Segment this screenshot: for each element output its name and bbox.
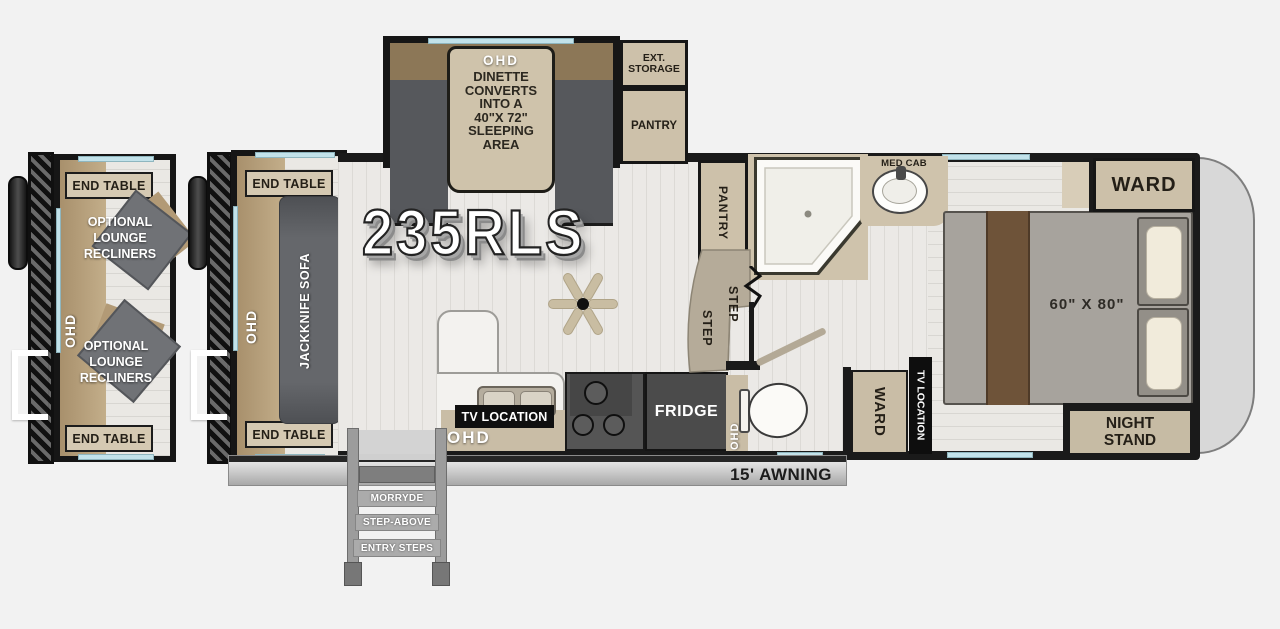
pillow-icon	[1146, 226, 1182, 299]
entry-step: MORRYDE	[357, 490, 437, 507]
ohd-label: OHD	[62, 268, 78, 348]
dinette-label: DINETTE CONVERTS INTO A 40"X 72" SLEEPIN…	[450, 70, 552, 151]
entry-step: STEP-ABOVE	[355, 514, 439, 531]
dinette-table: OHD DINETTE CONVERTS INTO A 40"X 72" SLE…	[447, 46, 555, 193]
stove-icon	[565, 372, 645, 451]
front-pantry: PANTRY	[620, 88, 688, 164]
entry-steps-foot	[432, 562, 450, 586]
corner-shower-icon	[748, 154, 868, 280]
wheel-icon	[188, 176, 208, 270]
wall	[726, 361, 760, 370]
entry-steps-foot	[344, 562, 362, 586]
bedroom-dresser	[1062, 162, 1090, 208]
end-table: END TABLE	[245, 170, 333, 197]
awning-bar: 15' AWNING	[228, 455, 847, 486]
model-number: 235RLS	[362, 195, 585, 269]
end-table: END TABLE	[245, 421, 333, 448]
window-icon	[78, 156, 154, 162]
pillow-box	[1137, 308, 1189, 397]
ohd-label: OHD	[447, 428, 491, 448]
bed-runner	[986, 211, 1030, 405]
floorplan-235rls: END TABLE END TABLE OPTIONAL LOUNGE RECL…	[0, 0, 1280, 629]
entry-door-icon	[12, 350, 48, 420]
ceiling-fan-icon	[549, 270, 617, 338]
window-icon	[233, 206, 238, 351]
fridge: FRIDGE	[645, 372, 728, 451]
optional-recliners-label: OPTIONAL LOUNGE RECLINERS	[64, 336, 168, 388]
optional-recliners-label: OPTIONAL LOUNGE RECLINERS	[68, 212, 172, 264]
jackknife-sofa-label: JACKKNIFE SOFA	[295, 216, 315, 406]
ext-storage: EXT. STORAGE	[620, 40, 688, 88]
window-icon	[255, 152, 335, 158]
window-icon	[78, 454, 154, 460]
optional-recliner-slide: END TABLE END TABLE OPTIONAL LOUNGE RECL…	[54, 154, 176, 462]
window-icon	[942, 154, 1030, 160]
awning-label: 15' AWNING	[730, 465, 832, 485]
wall	[1063, 403, 1070, 457]
entry-step	[359, 466, 435, 483]
step-label: STEP	[700, 310, 714, 347]
wall	[1063, 403, 1195, 411]
hall-ward-label: WARD	[871, 387, 888, 437]
dinette-slide: OHD DINETTE CONVERTS INTO A 40"X 72" SLE…	[383, 36, 620, 194]
wall	[843, 367, 851, 455]
end-table: END TABLE	[65, 425, 153, 452]
front-cap	[1198, 157, 1255, 454]
entry-landing	[359, 430, 435, 454]
tv-location-vertical: TV LOCATION	[909, 357, 932, 454]
hall-ward: WARD	[851, 370, 908, 454]
window-icon	[56, 208, 61, 353]
wheel-icon	[8, 176, 28, 270]
pillow-box	[1137, 217, 1189, 306]
ohd-label: OHD	[243, 264, 259, 344]
pillow-icon	[1146, 317, 1182, 390]
wall	[749, 302, 754, 364]
tv-location-label: TV LOCATION	[455, 405, 554, 428]
window-icon	[428, 38, 574, 44]
entry-door-icon	[191, 350, 227, 420]
step-label: STEP	[726, 286, 740, 323]
sofa-slide: END TABLE END TABLE JACKKNIFE SOFA OHD	[231, 150, 347, 462]
night-stand: NIGHT STAND	[1070, 411, 1190, 453]
bath-sink-icon	[872, 169, 928, 214]
bedroom-ward: WARD	[1093, 158, 1195, 212]
bed-size-label: 60" X 80"	[1032, 296, 1142, 313]
ohd-label: OHD	[450, 53, 552, 68]
bath-pantry-label: PANTRY	[716, 186, 730, 240]
tv-location-label: TV LOCATION	[915, 370, 927, 440]
window-icon	[947, 452, 1033, 458]
entry-step: ENTRY STEPS	[353, 539, 441, 557]
